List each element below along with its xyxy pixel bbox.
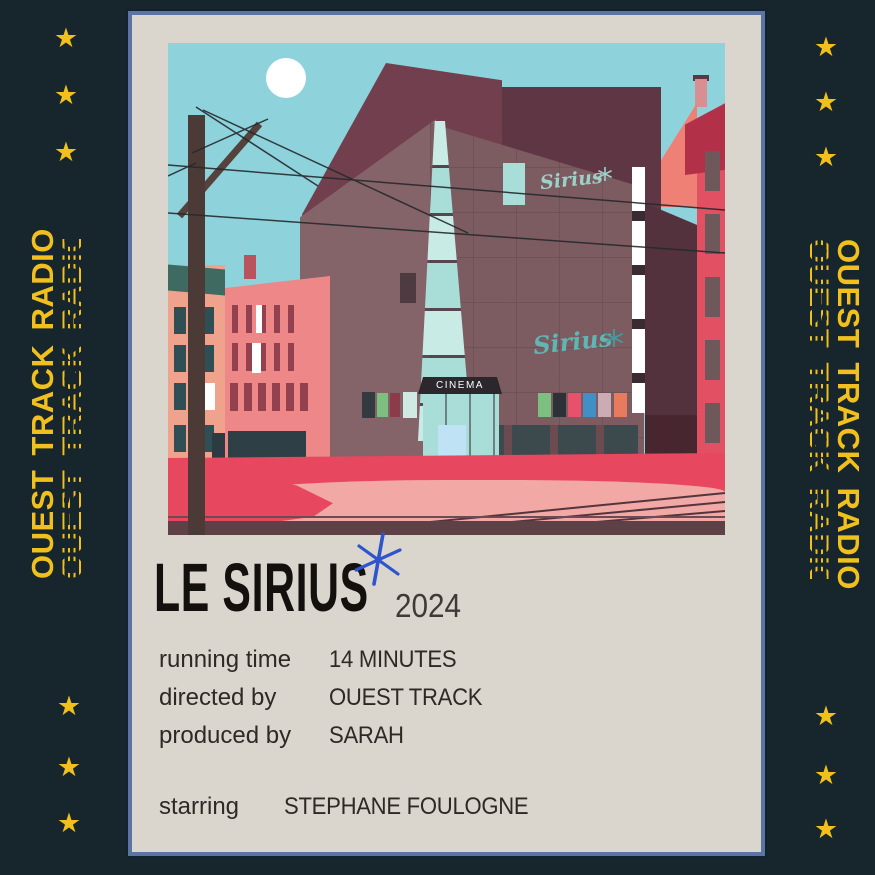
side-text-echo: OUEST TRACK RADIO <box>57 239 86 579</box>
side-text-left: OUEST TRACK RADIO OUEST TRACK RADIO <box>26 239 88 579</box>
star-icon: ★ <box>811 88 841 118</box>
cinema-illustration: Sirius Sirius CINEMA <box>168 43 725 535</box>
credit-value: SARAH <box>329 722 404 750</box>
star-icon: ★ <box>811 815 841 845</box>
star-icon: ★ <box>51 138 81 168</box>
star-icon: ★ <box>54 809 84 839</box>
side-text-solid: OUEST TRACK RADIO <box>28 239 57 579</box>
side-text-solid: OUEST TRACK RADIO <box>834 239 863 579</box>
film-title: LE SIRIUS <box>154 553 369 622</box>
star-icon: ★ <box>811 761 841 791</box>
power-wires <box>168 43 725 535</box>
blue-sparkle-icon <box>350 532 408 590</box>
star-icon: ★ <box>811 33 841 63</box>
side-text-right: OUEST TRACK RADIO OUEST TRACK RADIO <box>803 239 865 579</box>
star-icon: ★ <box>54 753 84 783</box>
credit-label: produced by <box>159 722 291 750</box>
credit-value: OUEST TRACK <box>329 684 482 712</box>
credit-label: starring <box>159 793 239 821</box>
star-icon: ★ <box>54 692 84 722</box>
credit-label: directed by <box>159 684 276 712</box>
side-text-echo: OUEST TRACK RADIO <box>805 239 834 579</box>
star-icon: ★ <box>811 702 841 732</box>
radio-film-poster: { "frame": { "side_text": "OUEST TRACK R… <box>0 0 875 875</box>
credit-value: 14 MINUTES <box>329 646 456 674</box>
film-year: 2024 <box>395 587 461 625</box>
star-icon: ★ <box>811 143 841 173</box>
polaroid-card: Sirius Sirius CINEMA <box>128 11 765 856</box>
credit-value: STEPHANE FOULOGNE <box>284 793 528 821</box>
star-icon: ★ <box>51 81 81 111</box>
star-icon: ★ <box>51 24 81 54</box>
credit-label: running time <box>159 646 291 674</box>
